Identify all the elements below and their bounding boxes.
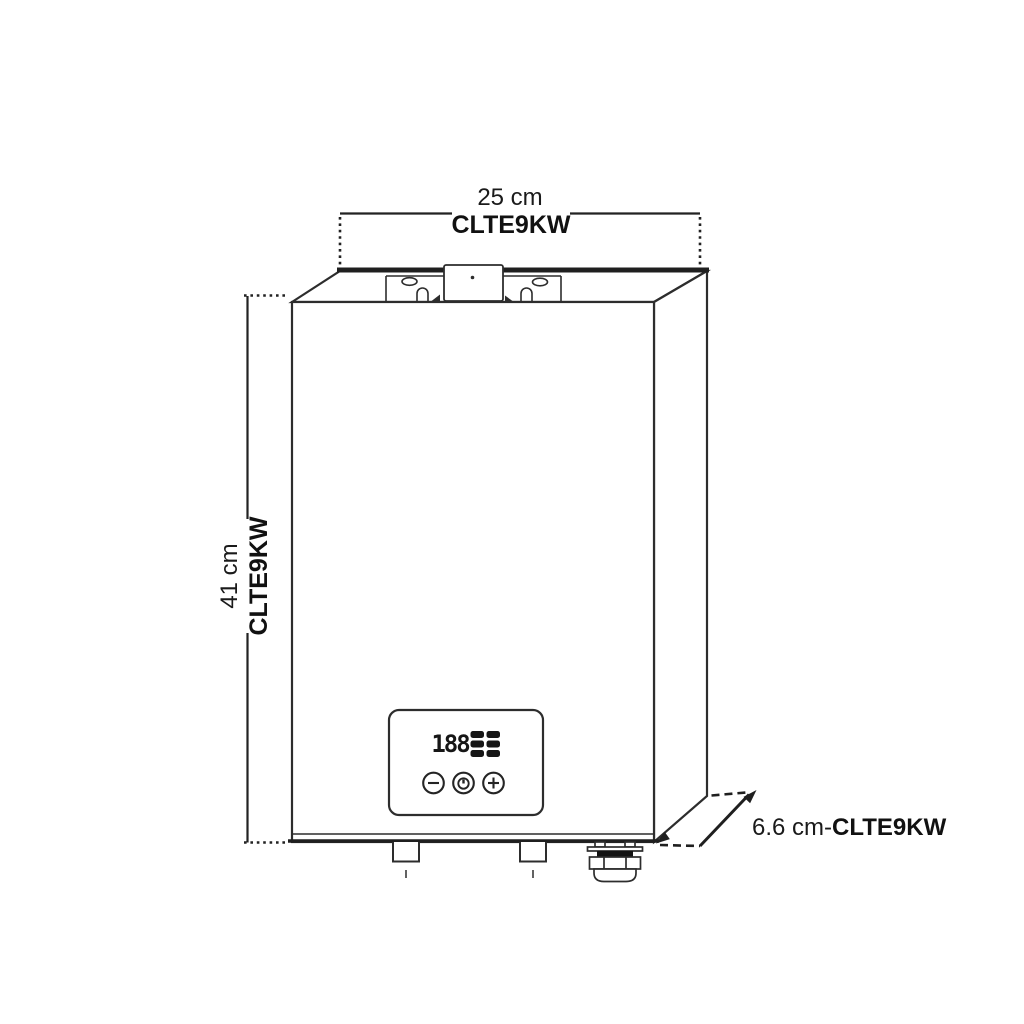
control-panel	[389, 710, 543, 815]
junction-box	[444, 265, 503, 301]
water-inlet-pipe	[393, 842, 419, 862]
water-outlet-pipe	[520, 842, 546, 862]
width-dimension-value: 25 cm	[460, 184, 560, 212]
cable-gland-cap	[594, 869, 636, 882]
heater-line-drawing	[0, 0, 1024, 1024]
heater-right-face	[654, 271, 707, 842]
arrowhead-outer	[744, 790, 757, 803]
depth-dimension-value: 6.6 cm	[752, 814, 824, 841]
height-dimension-label: 41 cm CLTE9KW	[215, 517, 275, 636]
depth-dimension-model: CLTE9KW	[832, 814, 946, 841]
height-dimension-value: 41 cm	[215, 517, 244, 636]
product-dimension-diagram: 25 cm CLTE9KW 41 cm CLTE9KW 6.6 cm-CLTE9…	[0, 0, 1024, 1024]
junction-box-screw	[471, 276, 475, 280]
width-dimension-model: CLTE9KW	[431, 211, 591, 240]
cable-gland-seal	[597, 851, 633, 857]
temperature-display: 188	[429, 730, 471, 758]
cable-gland	[588, 842, 643, 882]
depth-dimension-separator: -	[824, 814, 832, 841]
depth-dimension-label: 6.6 cm-CLTE9KW	[752, 814, 946, 842]
height-dimension-model: CLTE9KW	[244, 517, 275, 636]
pipe-connections	[393, 842, 546, 862]
